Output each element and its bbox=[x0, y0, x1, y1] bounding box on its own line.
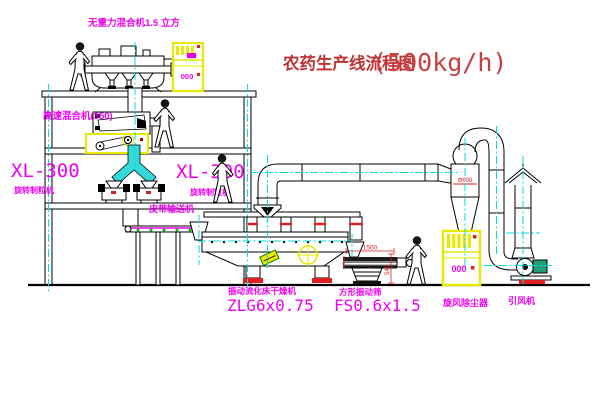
label-fan: 引风机 bbox=[508, 295, 535, 306]
granulator-right-unit bbox=[133, 181, 165, 203]
label-dryer-model: ZLG6x0.75 bbox=[227, 296, 314, 315]
label-granulator-left-model: XL-300 bbox=[11, 160, 80, 182]
induced-draft-fan bbox=[511, 259, 551, 285]
dim-1500: 1500 bbox=[363, 245, 378, 252]
diagram-canvas: 000 bbox=[0, 0, 600, 403]
granulator-discharge-chute bbox=[123, 209, 138, 226]
cabinet1-display: 000 bbox=[181, 72, 194, 81]
label-granulator-left-name: 旋转制粒机 bbox=[13, 185, 54, 195]
label-screen-model: FS0.6x1.5 bbox=[334, 296, 421, 315]
exhaust-duct bbox=[254, 164, 456, 217]
label-gravity-mixer: 无重力混合机1.5 立方 bbox=[87, 17, 180, 29]
label-belt-conveyor: 皮带输送机 bbox=[148, 203, 194, 214]
mixer-feed-valves bbox=[105, 73, 153, 89]
label-high-speed-mixer: 高速混合机(350) bbox=[43, 110, 113, 122]
label-granulator-right-name: 旋转制粒机 bbox=[189, 187, 230, 197]
fan-motor bbox=[533, 260, 547, 273]
fluid-bed-dryer bbox=[202, 212, 363, 283]
label-granulator-right-model: XL-300 bbox=[176, 161, 245, 183]
label-dryer-name: 振动流化床干燥机 bbox=[228, 286, 297, 296]
square-vibrating-screen: 1500 540 bbox=[343, 242, 414, 284]
granulator-left-unit bbox=[98, 181, 130, 203]
dim-540: 540 bbox=[385, 264, 391, 275]
belt-conveyor bbox=[125, 222, 208, 285]
label-cyclone: 旋风除尘器 bbox=[442, 297, 489, 308]
gravity-free-mixer bbox=[81, 46, 175, 112]
diagram-title: 农药生产线流程图 (500kg/h) bbox=[282, 48, 507, 77]
cabinet1-indicator bbox=[187, 53, 196, 58]
control-cabinet-2: 000 bbox=[443, 231, 480, 285]
control-cabinet-1: 000 bbox=[173, 43, 203, 91]
cabinet2-display: 000 bbox=[451, 264, 466, 274]
title-capacity: (500kg/h) bbox=[372, 48, 507, 77]
